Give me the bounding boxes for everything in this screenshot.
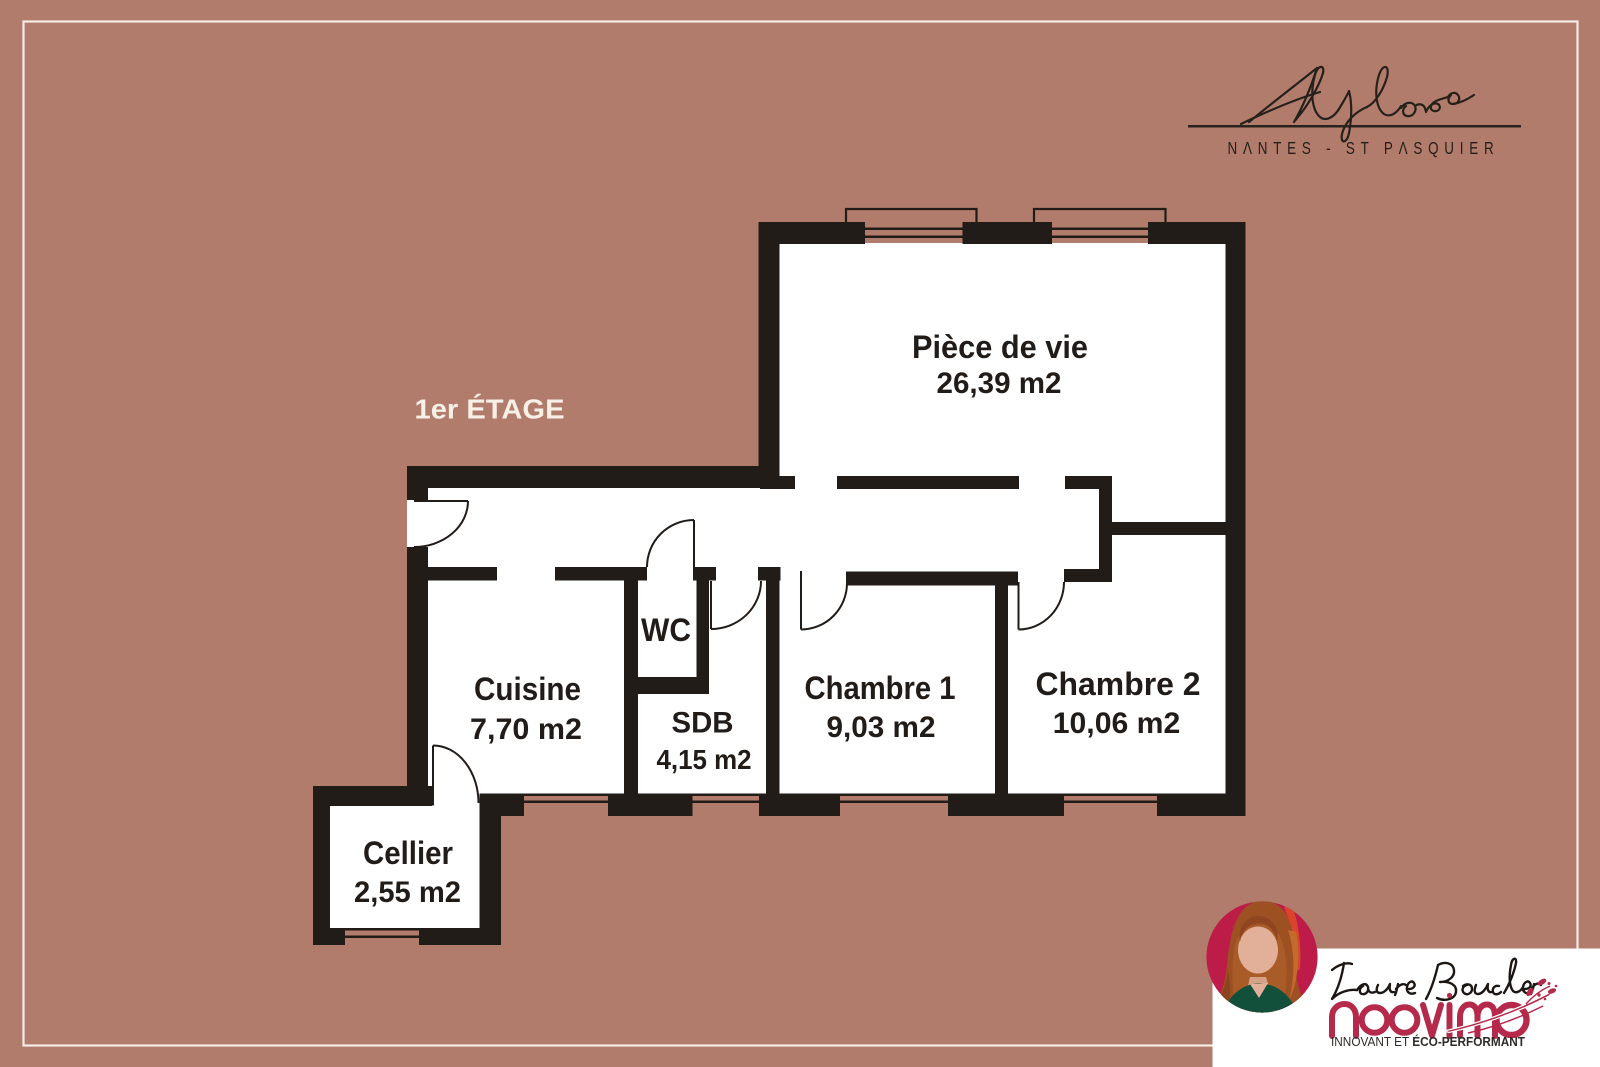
svg-text:Chambre 1: Chambre 1 bbox=[805, 670, 956, 706]
svg-text:2,55 m2: 2,55 m2 bbox=[354, 876, 461, 909]
svg-text:WC: WC bbox=[641, 612, 691, 648]
svg-text:SDB: SDB bbox=[672, 707, 734, 740]
svg-text:Pièce de vie: Pièce de vie bbox=[912, 329, 1088, 365]
svg-text:26,39 m2: 26,39 m2 bbox=[937, 367, 1062, 400]
svg-text:10,06 m2: 10,06 m2 bbox=[1053, 707, 1181, 740]
svg-text:1er ÉTAGE: 1er ÉTAGE bbox=[415, 394, 565, 425]
svg-text:Chambre 2: Chambre 2 bbox=[1036, 666, 1201, 702]
svg-text:7,70 m2: 7,70 m2 bbox=[470, 713, 582, 746]
svg-text:Cellier: Cellier bbox=[363, 835, 453, 871]
svg-text:INNOVANT ET ÉCO-PERFORMANT: INNOVANT ET ÉCO-PERFORMANT bbox=[1331, 1034, 1525, 1049]
svg-text:9,03 m2: 9,03 m2 bbox=[827, 711, 936, 744]
svg-text:NΛNTES - ST PΛSQUIER: NΛNTES - ST PΛSQUIER bbox=[1228, 138, 1500, 158]
svg-text:Cuisine: Cuisine bbox=[474, 671, 581, 707]
svg-text:4,15 m2: 4,15 m2 bbox=[657, 744, 752, 775]
